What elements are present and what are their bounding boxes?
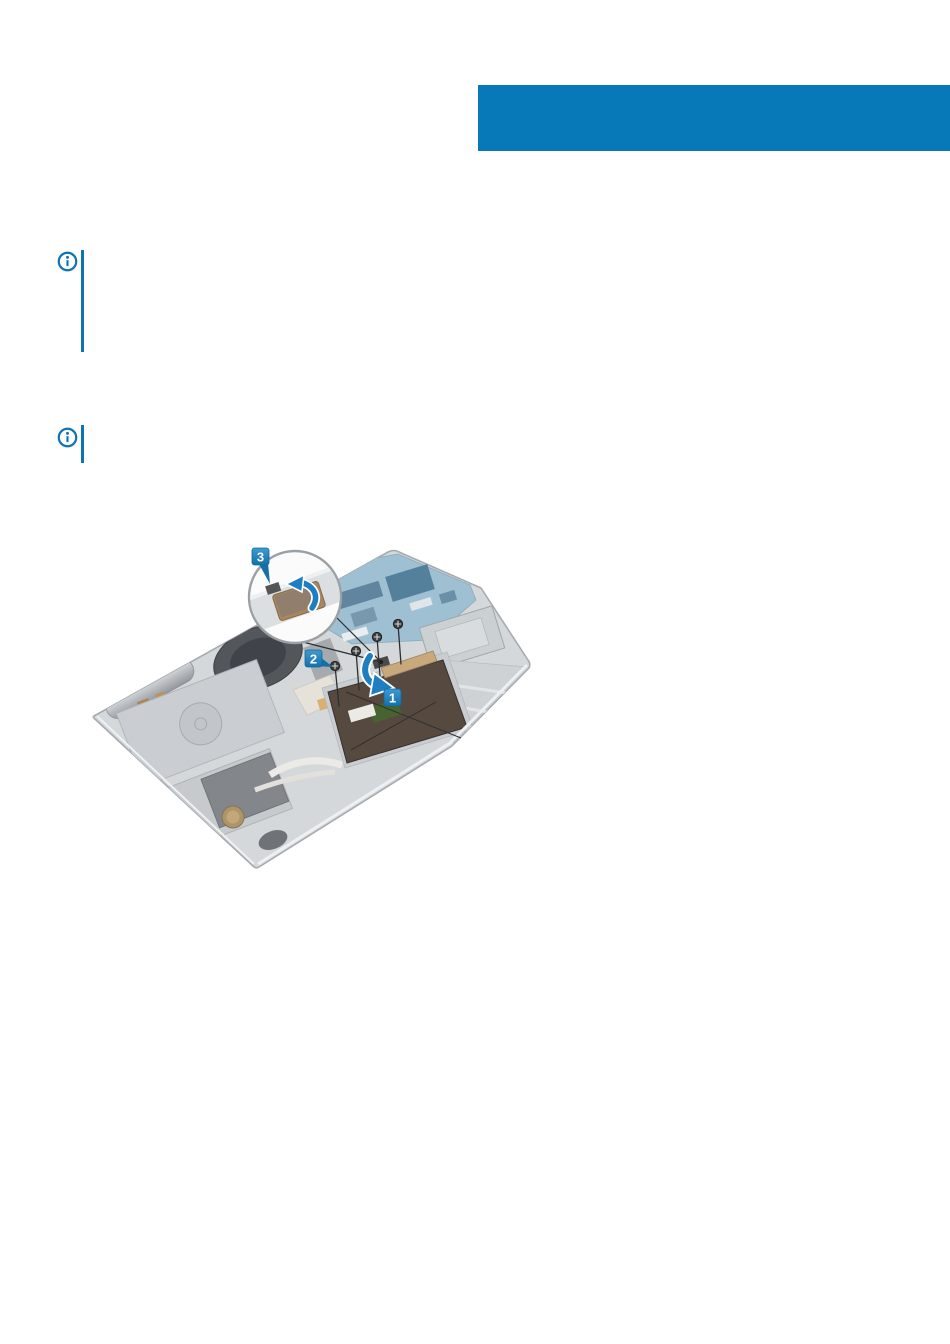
info-icon [57,251,78,272]
callout-2-label: 2 [310,652,317,667]
callout-1: 1 [384,689,401,706]
note-rule [81,250,84,352]
note-rule [81,425,84,463]
touchpad-removal-figure: 3 2 1 [85,540,545,880]
callout-1-label: 1 [389,691,396,706]
screw-icon [372,632,381,641]
screw-icon [393,619,402,628]
screw-icon [351,646,360,655]
screw-icon [330,661,339,670]
manual-page: 3 2 1 [0,0,950,1344]
coin-cell-battery-center [227,811,240,824]
info-icon [57,427,78,448]
callout-3-label: 3 [257,550,264,565]
chapter-title-bar [478,85,950,151]
